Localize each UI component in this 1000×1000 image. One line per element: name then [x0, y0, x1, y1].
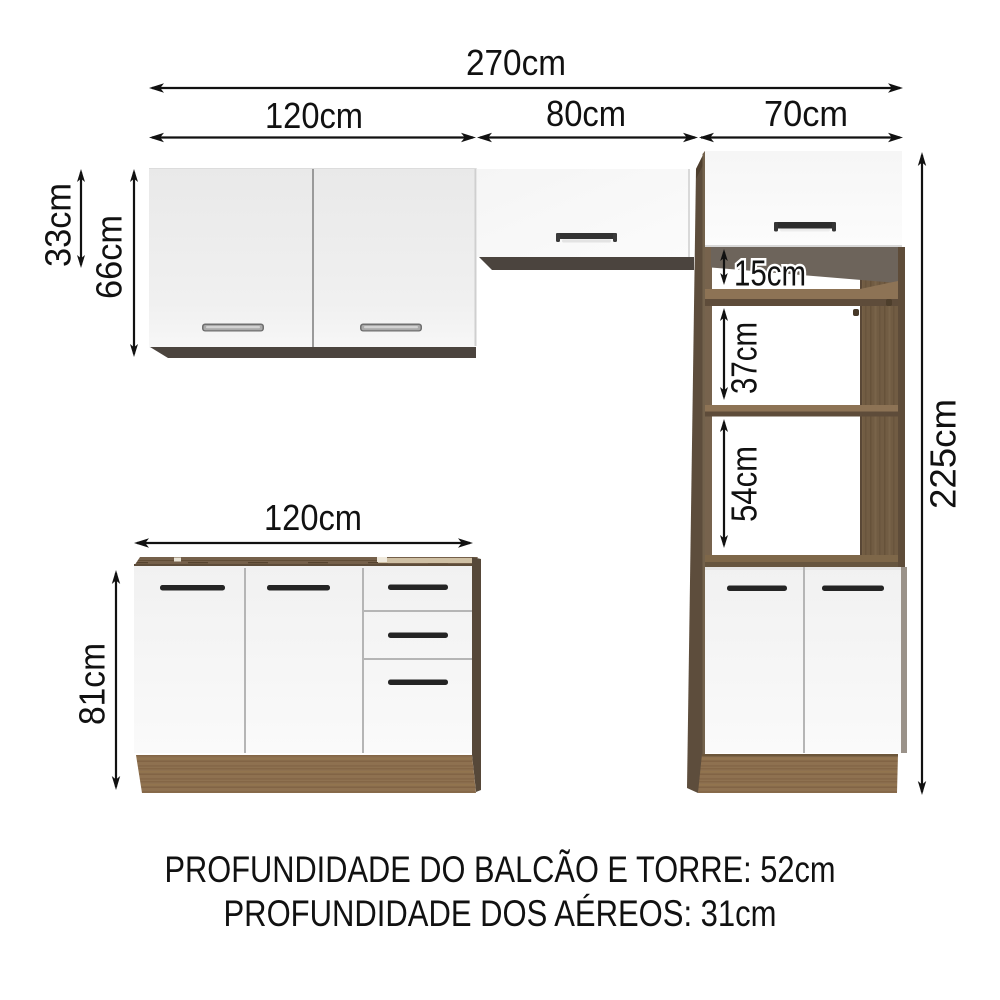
svg-text:PROFUNDIDADE DOS AÉREOS: 31cm: PROFUNDIDADE DOS AÉREOS: 31cm	[224, 893, 777, 934]
svg-text:66cm: 66cm	[89, 215, 130, 299]
svg-text:81cm: 81cm	[72, 643, 113, 725]
svg-text:15cm: 15cm	[734, 253, 806, 294]
svg-text:33cm: 33cm	[38, 183, 79, 267]
svg-text:70cm: 70cm	[764, 93, 848, 134]
svg-text:54cm: 54cm	[724, 446, 765, 522]
svg-text:37cm: 37cm	[724, 322, 765, 394]
svg-text:120cm: 120cm	[264, 497, 362, 538]
svg-text:80cm: 80cm	[546, 93, 626, 134]
svg-text:225cm: 225cm	[923, 399, 964, 509]
svg-text:PROFUNDIDADE DO BALCÃO E TORRE: PROFUNDIDADE DO BALCÃO E TORRE: 52cm	[165, 849, 836, 890]
svg-text:120cm: 120cm	[265, 95, 363, 136]
svg-text:270cm: 270cm	[466, 42, 566, 83]
